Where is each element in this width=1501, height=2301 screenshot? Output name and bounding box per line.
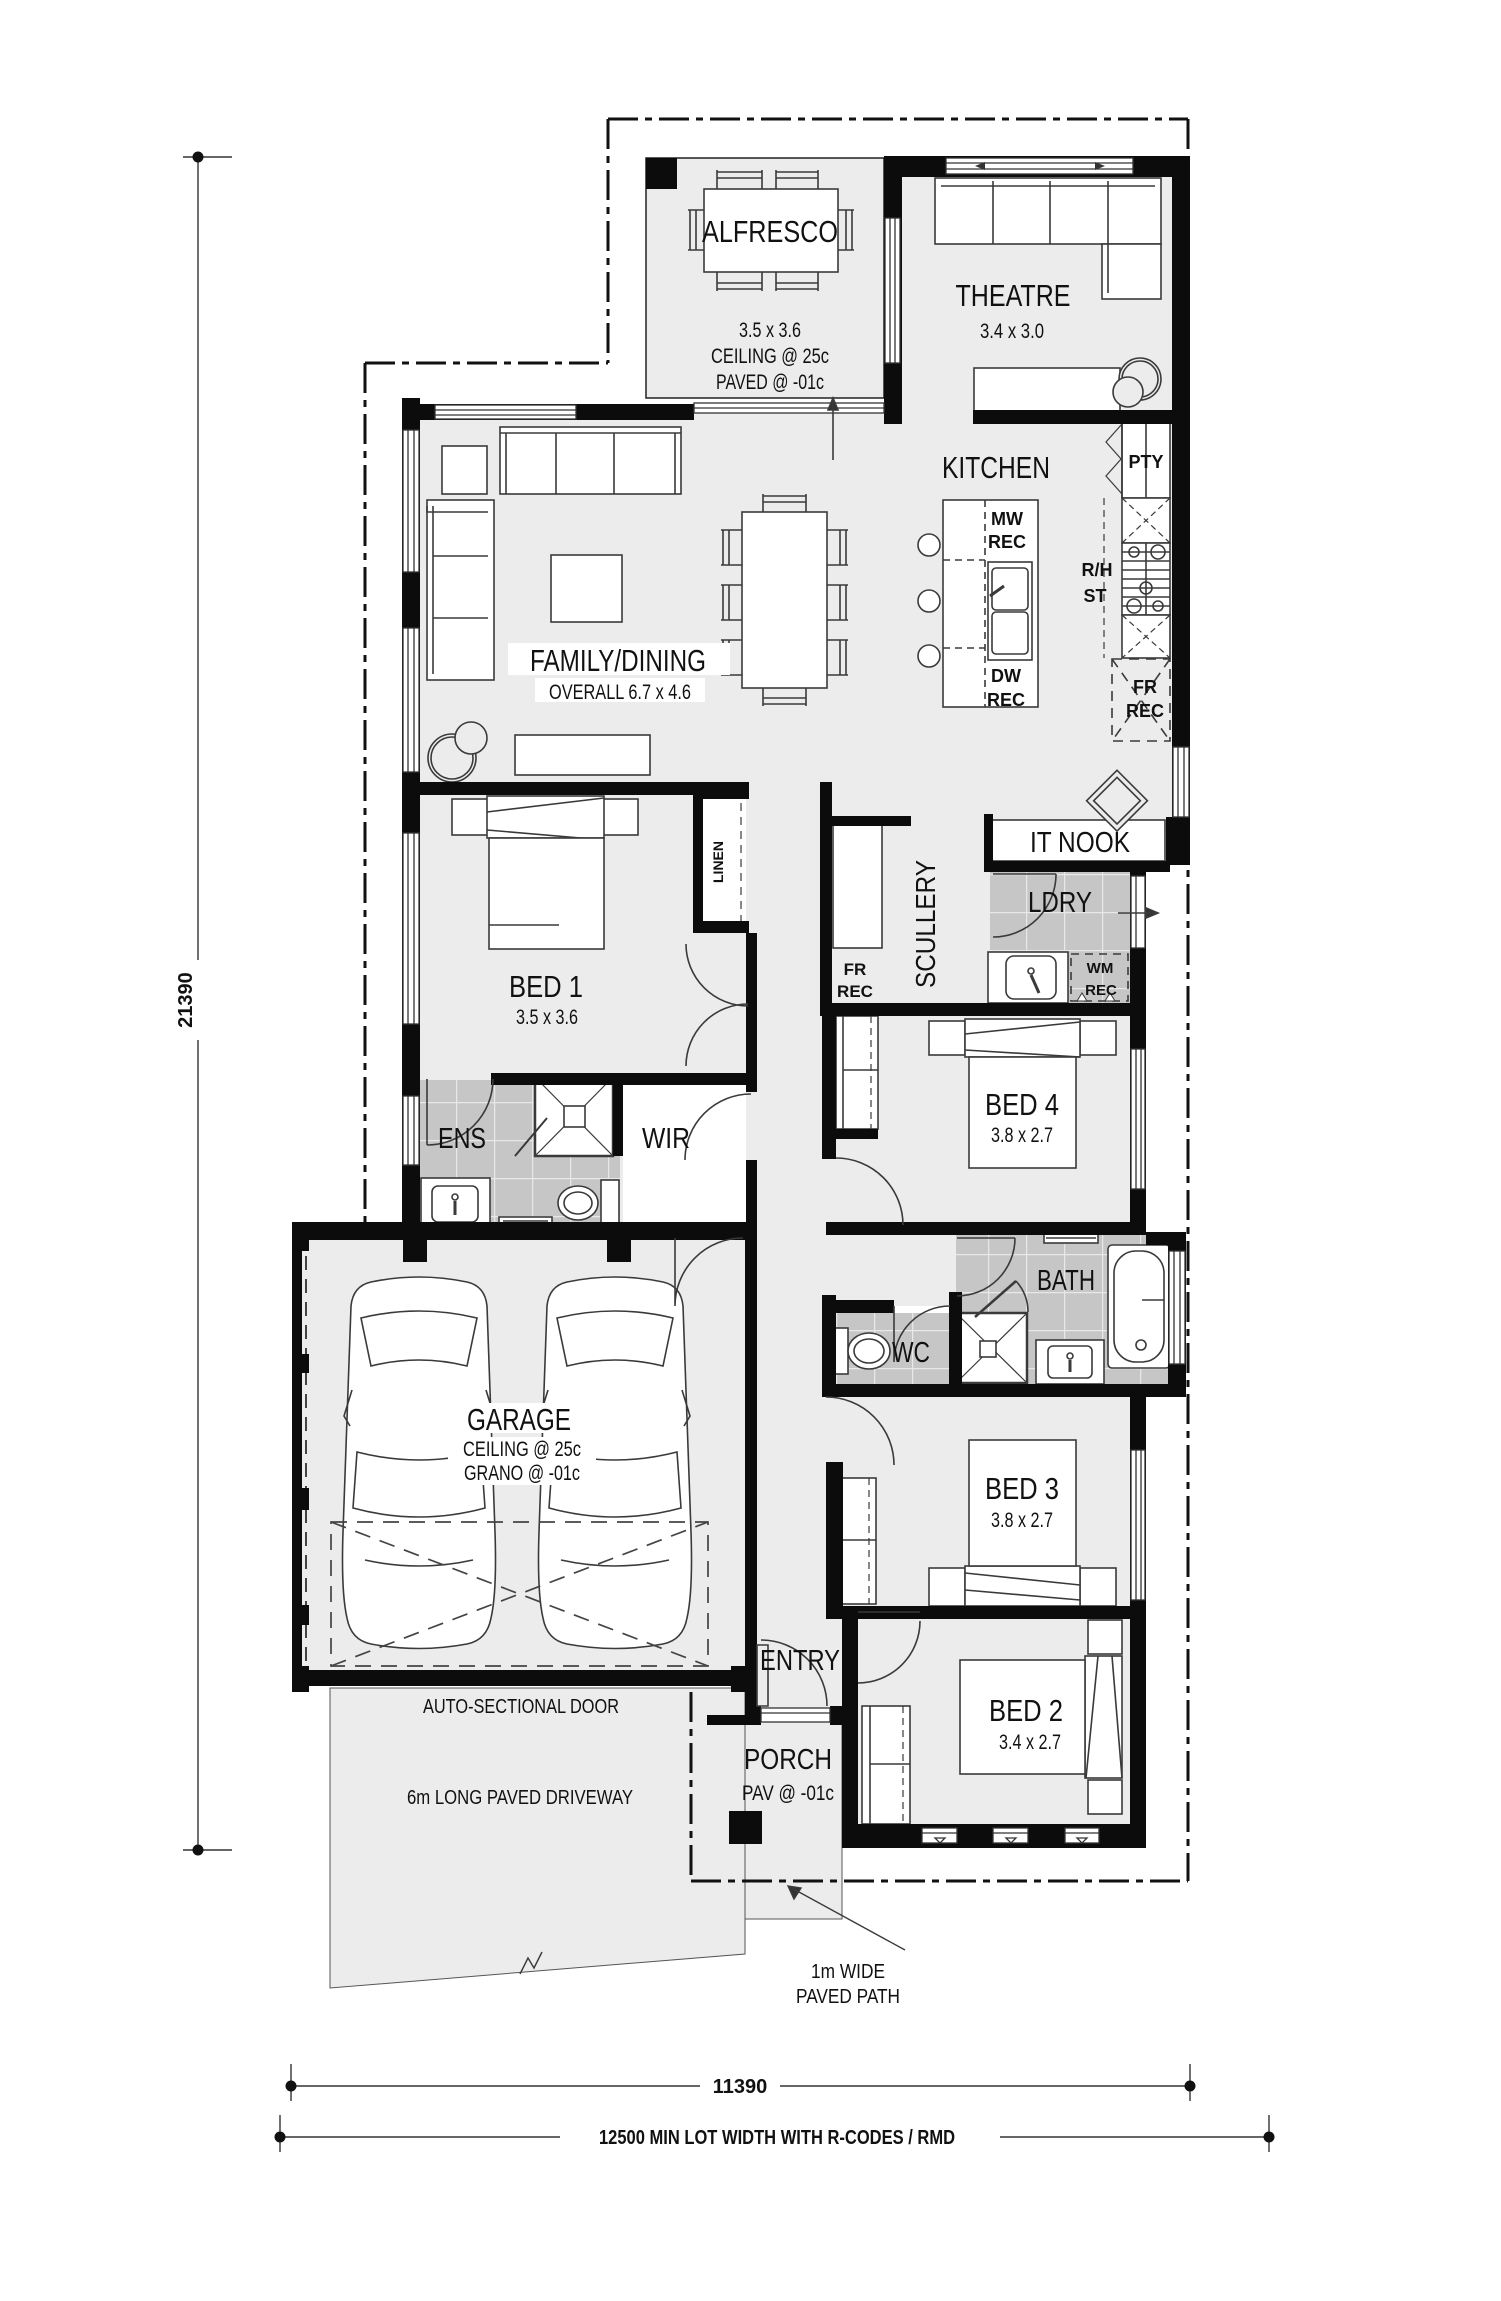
svg-text:BATH: BATH bbox=[1037, 1265, 1095, 1297]
svg-text:GRANO @ -01c: GRANO @ -01c bbox=[464, 1462, 580, 1485]
svg-text:WC: WC bbox=[892, 1337, 930, 1369]
svg-text:LINEN: LINEN bbox=[710, 841, 726, 883]
svg-text:CEILING @ 25c: CEILING @ 25c bbox=[463, 1438, 581, 1461]
svg-text:AUTO-SECTIONAL DOOR: AUTO-SECTIONAL DOOR bbox=[423, 1696, 619, 1718]
svg-text:PORCH: PORCH bbox=[744, 1744, 832, 1776]
svg-text:3.8 x 2.7: 3.8 x 2.7 bbox=[991, 1509, 1053, 1532]
svg-text:GARAGE: GARAGE bbox=[467, 1402, 571, 1437]
svg-text:REC: REC bbox=[1085, 982, 1117, 999]
svg-text:OVERALL 6.7 x 4.6: OVERALL 6.7 x 4.6 bbox=[549, 681, 691, 704]
svg-text:PAVED PATH: PAVED PATH bbox=[796, 1986, 900, 2008]
svg-text:DW: DW bbox=[991, 666, 1021, 686]
svg-text:R/H: R/H bbox=[1082, 560, 1113, 580]
svg-text:CEILING @ 25c: CEILING @ 25c bbox=[711, 345, 829, 368]
svg-text:BED 3: BED 3 bbox=[985, 1471, 1059, 1506]
svg-text:6m LONG PAVED DRIVEWAY: 6m LONG PAVED DRIVEWAY bbox=[407, 1787, 633, 1809]
svg-text:ST: ST bbox=[1083, 586, 1106, 606]
svg-text:1m WIDE: 1m WIDE bbox=[811, 1961, 885, 1983]
svg-text:ENTRY: ENTRY bbox=[760, 1645, 840, 1677]
svg-text:3.5 x 3.6: 3.5 x 3.6 bbox=[739, 319, 801, 342]
svg-text:11390: 11390 bbox=[713, 2076, 768, 2098]
svg-text:REC: REC bbox=[1126, 701, 1164, 721]
svg-text:PAV @ -01c: PAV @ -01c bbox=[742, 1782, 834, 1805]
svg-text:ENS: ENS bbox=[438, 1123, 486, 1155]
svg-text:FAMILY/DINING: FAMILY/DINING bbox=[530, 643, 706, 678]
svg-text:3.8 x 2.7: 3.8 x 2.7 bbox=[991, 1124, 1053, 1147]
svg-text:ALFRESCO: ALFRESCO bbox=[702, 214, 838, 249]
svg-text:BED 1: BED 1 bbox=[509, 969, 583, 1004]
svg-text:FR: FR bbox=[1133, 677, 1157, 697]
svg-text:3.4 x 2.7: 3.4 x 2.7 bbox=[999, 1731, 1061, 1754]
svg-text:3.4 x 3.0: 3.4 x 3.0 bbox=[980, 320, 1044, 343]
svg-text:MW: MW bbox=[991, 509, 1023, 529]
svg-text:REC: REC bbox=[837, 982, 873, 1001]
svg-text:REC: REC bbox=[988, 532, 1026, 552]
svg-text:FR: FR bbox=[844, 960, 867, 979]
svg-text:BED 2: BED 2 bbox=[989, 1693, 1063, 1728]
svg-text:PAVED @ -01c: PAVED @ -01c bbox=[716, 371, 824, 394]
svg-text:REC: REC bbox=[987, 690, 1025, 710]
svg-text:WM: WM bbox=[1087, 960, 1114, 977]
svg-text:BED 4: BED 4 bbox=[985, 1087, 1059, 1122]
svg-text:SCULLERY: SCULLERY bbox=[910, 860, 941, 988]
svg-text:KITCHEN: KITCHEN bbox=[942, 450, 1050, 485]
svg-text:IT NOOK: IT NOOK bbox=[1030, 827, 1131, 859]
svg-text:21390: 21390 bbox=[175, 972, 197, 1028]
svg-text:THEATRE: THEATRE bbox=[956, 278, 1071, 313]
svg-text:WIR: WIR bbox=[642, 1123, 690, 1155]
svg-text:PTY: PTY bbox=[1128, 452, 1163, 472]
svg-text:12500 MIN LOT WIDTH WITH R-COD: 12500 MIN LOT WIDTH WITH R-CODES / RMD bbox=[599, 2127, 955, 2149]
svg-text:3.5 x 3.6: 3.5 x 3.6 bbox=[516, 1006, 578, 1029]
svg-text:LDRY: LDRY bbox=[1028, 887, 1092, 919]
